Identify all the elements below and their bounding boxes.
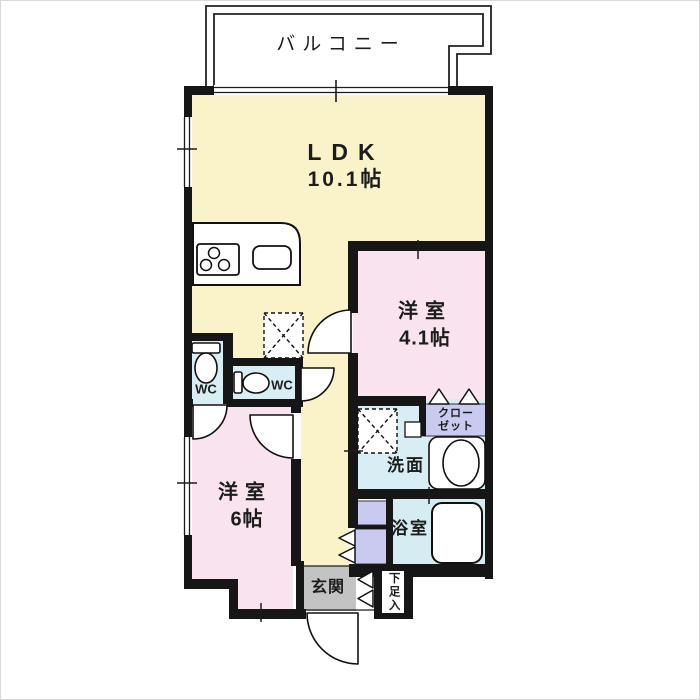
hallway xyxy=(301,251,350,571)
balcony-label: バルコニー xyxy=(276,34,406,56)
bedroom-41-label: 洋室 xyxy=(398,301,452,324)
washroom-box-icon xyxy=(405,422,421,437)
hall-closet-lower xyxy=(355,529,387,564)
room-bedroom-41 xyxy=(353,248,490,404)
kitchen-sink-icon xyxy=(253,246,291,269)
bedroom-6-label: 洋室 xyxy=(218,482,272,505)
bathroom-label: 浴室 xyxy=(391,519,429,539)
toilet-right-icon xyxy=(243,373,269,393)
kitchen-counter-icon xyxy=(193,223,300,285)
closet-label: クローゼット xyxy=(435,407,477,432)
bedroom-41-size: 4.1帖 xyxy=(399,328,451,351)
door-entrance xyxy=(307,613,358,664)
washroom-label: 洗面 xyxy=(387,456,425,476)
hall-closet-upper xyxy=(355,501,387,525)
toilet-tank-left-icon xyxy=(192,343,220,353)
ldk-label: LDK xyxy=(307,139,384,165)
vanity-basin-icon xyxy=(443,440,479,486)
entrance-label: 玄関 xyxy=(311,579,345,597)
bathtub-icon xyxy=(432,503,482,563)
ldk-size-label: 10.1帖 xyxy=(308,168,385,192)
toilet-tank-right-icon xyxy=(234,372,242,393)
floor-plan-drawing xyxy=(1,1,700,700)
wc-right-label: WC xyxy=(271,379,293,394)
toilet-left-icon xyxy=(195,353,217,383)
floor-plan: バルコニー LDK 10.1帖 洋室 4.1帖 洋室 6帖 クローゼット WC … xyxy=(0,0,700,700)
shoe-cabinet-label: 下足入 xyxy=(386,572,399,613)
bedroom-6-size: 6帖 xyxy=(230,509,263,532)
wc-left-label: WC xyxy=(195,383,217,398)
